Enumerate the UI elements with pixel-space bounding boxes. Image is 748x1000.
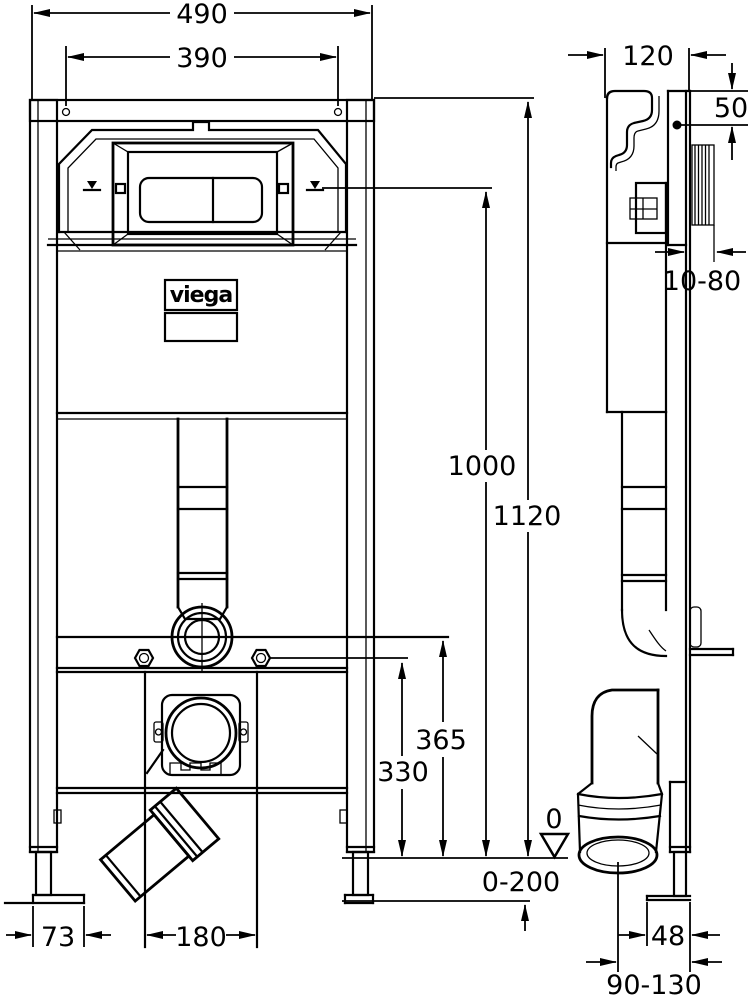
side-view bbox=[578, 91, 733, 900]
dim-fixing-hole-spacing-label: 390 bbox=[176, 43, 228, 74]
flush-plate bbox=[113, 143, 293, 245]
dim-fixing-height: 330 bbox=[270, 658, 429, 856]
side-frame-rail bbox=[668, 91, 690, 852]
front-view: viega bbox=[5, 100, 448, 947]
dim-water-supply-height: 365 bbox=[415, 641, 467, 856]
dim-actuation-height-label: 1000 bbox=[448, 451, 517, 482]
dim-foot-plate-depth-label: 48 bbox=[651, 921, 685, 952]
technical-drawing-page: viega bbox=[0, 0, 748, 1000]
dim-fixing-rail-spacing: 180 bbox=[147, 922, 255, 953]
wall-section bbox=[692, 145, 714, 262]
cistern-tank bbox=[48, 122, 356, 419]
dim-outlet-wall-distance-label: 90-130 bbox=[606, 970, 702, 1000]
dim-water-supply-height-label: 365 bbox=[415, 725, 467, 756]
dim-top-fixing-offset-label: 50 bbox=[714, 93, 748, 124]
dim-wall-clearance: 10-80 bbox=[655, 252, 746, 297]
floor-datum: 0 bbox=[342, 804, 568, 858]
dim-frame-depth-label: 120 bbox=[622, 41, 674, 72]
dimensions: 490 390 1120 1000 365 bbox=[6, 0, 748, 1000]
dim-floor-buildup-label: 0-200 bbox=[482, 867, 560, 898]
viega-logo-text: viega bbox=[170, 283, 233, 308]
wc-fixing-stud bbox=[690, 607, 733, 655]
brand-logo: viega bbox=[165, 280, 237, 341]
dim-fixing-rail-spacing-label: 180 bbox=[175, 922, 227, 953]
side-drain-elbow bbox=[578, 690, 662, 873]
dim-frame-height-label: 1120 bbox=[493, 501, 562, 532]
drain-outlet-pipe bbox=[97, 788, 219, 905]
datum-triangle-icon bbox=[541, 834, 568, 857]
dim-floor-buildup: 0-200 bbox=[342, 867, 560, 931]
dim-fixing-hole-spacing: 390 bbox=[66, 43, 338, 106]
dim-foot-plate-width-label: 73 bbox=[41, 922, 75, 953]
dim-frame-depth: 120 bbox=[568, 41, 726, 98]
wc-frame-technical-drawing: viega bbox=[0, 0, 748, 1000]
flush-pipe bbox=[178, 419, 227, 619]
dim-overall-width-label: 490 bbox=[176, 0, 228, 30]
flush-buttons bbox=[140, 178, 262, 222]
dim-foot-plate-width: 73 bbox=[6, 906, 111, 953]
side-flush-pipe bbox=[622, 412, 666, 656]
dim-wall-clearance-label: 10-80 bbox=[663, 266, 741, 297]
drain-bracket bbox=[145, 672, 257, 947]
dim-fixing-height-label: 330 bbox=[377, 757, 429, 788]
datum-zero-label: 0 bbox=[545, 804, 562, 835]
side-foot bbox=[647, 782, 690, 900]
